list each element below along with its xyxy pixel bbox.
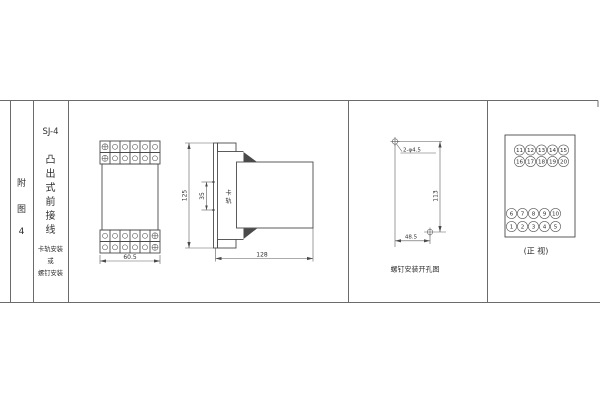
case-bottom-step bbox=[218, 229, 258, 249]
drill-vertical-dim-label: 113 bbox=[433, 190, 440, 202]
type-label-char: 接 bbox=[46, 209, 56, 222]
front-width-dim-label: 60.5 bbox=[123, 254, 137, 261]
rail-slot-label-char: 轨 bbox=[225, 197, 231, 205]
terminal-number: 18 bbox=[538, 159, 546, 165]
drill-vertical-dimension: 113 bbox=[433, 142, 442, 233]
drawing-sheet: 附 图 4 SJ-4 凸 出 式 前 接 线 卡轨安装 或 螺钉安装 bbox=[0, 0, 600, 400]
hole-callout-label: 2-φ4.5 bbox=[403, 148, 421, 154]
figure-label-char: 4 bbox=[19, 227, 25, 237]
drill-view-caption: 螺钉安装开孔图 bbox=[391, 265, 440, 274]
terminal-number: 3 bbox=[532, 224, 536, 230]
figure-label-char: 附 bbox=[17, 177, 26, 189]
terminal-front-view: 11 12 13 14 15 16 17 18 19 20 6 7 8 9 10… bbox=[505, 135, 575, 256]
type-label-char: 凸 bbox=[46, 154, 56, 166]
front-plate-outline bbox=[214, 143, 218, 248]
type-label-char: 式 bbox=[46, 181, 56, 194]
rail-slot-dimension: 35 bbox=[199, 181, 215, 211]
side-length-dimension: 128 bbox=[216, 228, 314, 262]
terminal-row-11-15: 11 12 13 14 15 bbox=[514, 145, 568, 155]
mounting-screw-icon bbox=[102, 144, 108, 150]
mounting-note-line: 卡轨安装 bbox=[38, 244, 64, 253]
mounting-screw-icon bbox=[152, 244, 158, 250]
terminal-number: 20 bbox=[560, 159, 568, 165]
title-block-column: SJ-4 凸 出 式 前 接 线 卡轨安装 或 螺钉安装 bbox=[38, 127, 64, 277]
case-top-step bbox=[218, 143, 258, 162]
mounting-note-line: 或 bbox=[47, 256, 54, 265]
terminal-number: 19 bbox=[549, 159, 557, 165]
side-height-dimension: 125 bbox=[182, 143, 214, 248]
top-terminal-block bbox=[100, 141, 160, 164]
side-length-dim-label: 128 bbox=[256, 252, 268, 259]
terminal-row-1-5: 1 2 3 4 5 bbox=[506, 221, 560, 231]
side-height-dim-label: 125 bbox=[182, 190, 189, 202]
rail-slot-label: 卡 轨 bbox=[225, 189, 231, 205]
terminal-number: 12 bbox=[527, 148, 534, 154]
figure-label-char: 图 bbox=[17, 204, 26, 215]
figure-label-column: 附 图 4 bbox=[17, 177, 26, 237]
terminal-number: 17 bbox=[527, 159, 535, 165]
terminal-number: 6 bbox=[510, 211, 514, 217]
type-label-char: 出 bbox=[46, 167, 56, 180]
terminal-number: 2 bbox=[521, 224, 525, 230]
case-body-outline bbox=[237, 162, 314, 228]
model-label: SJ-4 bbox=[42, 127, 58, 137]
terminal-number: 4 bbox=[543, 224, 547, 230]
drill-horizontal-dim-label: 48.5 bbox=[405, 235, 418, 241]
terminal-number: 11 bbox=[516, 148, 524, 154]
terminal-number: 15 bbox=[560, 148, 568, 154]
rail-slot-dim-label: 35 bbox=[199, 192, 206, 200]
type-label-char: 前 bbox=[46, 195, 56, 208]
drill-hole-view: 2-φ4.5 113 48.5 螺钉安装开孔图 bbox=[391, 137, 447, 274]
front-view: 60.5 bbox=[100, 141, 160, 264]
drill-horizontal-dimension: 48.5 bbox=[395, 235, 430, 244]
terminal-number: 14 bbox=[549, 148, 557, 154]
terminal-number: 9 bbox=[543, 211, 547, 217]
terminal-number: 7 bbox=[521, 211, 525, 217]
terminal-view-caption: (正 视) bbox=[524, 246, 549, 256]
bottom-drill-hole-icon bbox=[424, 228, 446, 237]
relay-body-outline bbox=[102, 164, 158, 230]
hole-callout: 2-φ4.5 bbox=[397, 144, 437, 154]
front-width-dimension: 60.5 bbox=[100, 254, 160, 264]
technical-drawing: 附 图 4 SJ-4 凸 出 式 前 接 线 卡轨安装 或 螺钉安装 bbox=[0, 0, 600, 400]
terminal-number: 16 bbox=[516, 159, 524, 165]
type-label-char: 线 bbox=[46, 223, 56, 236]
bottom-terminal-block bbox=[100, 230, 160, 253]
terminal-row-16-20: 16 17 18 19 20 bbox=[514, 156, 568, 166]
rail-slot-label-char: 卡 bbox=[225, 189, 231, 197]
terminal-row-6-10: 6 7 8 9 10 bbox=[506, 208, 560, 218]
table-grid bbox=[0, 101, 600, 303]
terminal-number: 1 bbox=[510, 224, 514, 230]
terminal-number: 8 bbox=[532, 211, 536, 217]
terminal-number: 13 bbox=[538, 148, 546, 154]
side-view: 125 35 卡 轨 bbox=[182, 143, 314, 262]
terminal-number: 10 bbox=[552, 211, 560, 217]
mounting-screw-icon bbox=[152, 233, 158, 239]
terminal-number: 5 bbox=[554, 224, 558, 230]
mounting-note-line: 螺钉安装 bbox=[38, 268, 64, 277]
mounting-screw-icon bbox=[102, 155, 108, 161]
